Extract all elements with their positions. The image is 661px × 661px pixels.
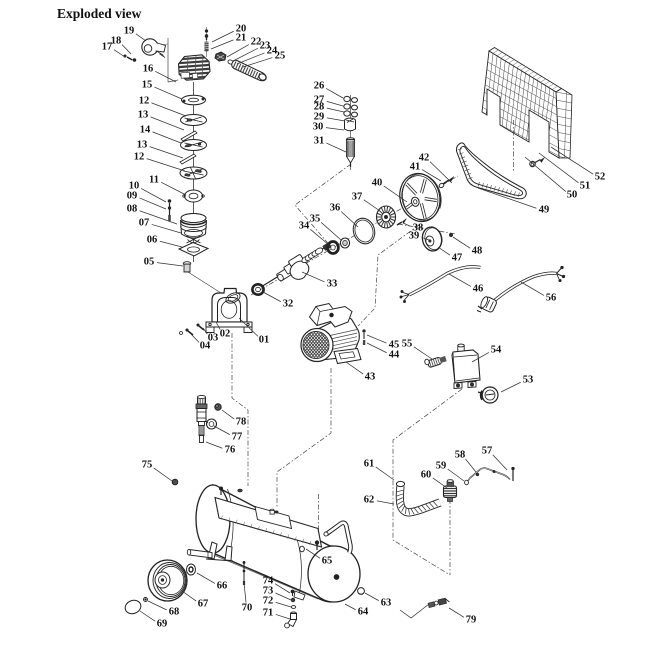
svg-text:73: 73 [263, 586, 274, 597]
svg-text:69: 69 [157, 619, 168, 630]
svg-text:26: 26 [314, 81, 325, 92]
svg-text:13: 13 [137, 140, 148, 151]
svg-text:61: 61 [364, 459, 375, 470]
svg-text:Exploded view: Exploded view [57, 6, 142, 21]
svg-text:57: 57 [482, 446, 493, 457]
svg-text:04: 04 [200, 341, 211, 352]
svg-text:25: 25 [275, 51, 286, 62]
svg-text:49: 49 [539, 205, 550, 216]
svg-text:43: 43 [365, 372, 376, 383]
svg-text:01: 01 [259, 335, 270, 346]
svg-text:40: 40 [372, 178, 383, 189]
svg-text:34: 34 [299, 221, 310, 232]
svg-text:36: 36 [330, 203, 341, 214]
svg-text:78: 78 [236, 417, 247, 428]
svg-text:30: 30 [313, 122, 324, 133]
svg-text:75: 75 [142, 460, 153, 471]
svg-text:21: 21 [236, 33, 247, 44]
svg-text:42: 42 [419, 153, 430, 164]
svg-text:33: 33 [327, 279, 338, 290]
svg-text:31: 31 [314, 136, 325, 147]
svg-text:55: 55 [402, 339, 413, 350]
svg-text:63: 63 [381, 598, 392, 609]
svg-text:46: 46 [473, 284, 484, 295]
svg-text:15: 15 [142, 80, 153, 91]
svg-text:19: 19 [124, 26, 135, 37]
svg-text:06: 06 [147, 235, 158, 246]
svg-text:64: 64 [358, 607, 369, 618]
svg-text:37: 37 [352, 192, 363, 203]
svg-text:76: 76 [225, 445, 236, 456]
svg-text:18: 18 [111, 36, 122, 47]
svg-text:35: 35 [310, 214, 321, 225]
svg-text:53: 53 [523, 375, 534, 386]
svg-text:05: 05 [144, 257, 155, 268]
svg-text:12: 12 [134, 152, 145, 163]
svg-text:17: 17 [102, 42, 113, 53]
svg-text:70: 70 [242, 603, 253, 614]
svg-text:52: 52 [595, 172, 606, 183]
svg-text:71: 71 [263, 608, 274, 619]
svg-text:79: 79 [466, 615, 477, 626]
svg-text:39: 39 [409, 231, 420, 242]
svg-text:72: 72 [263, 596, 274, 607]
svg-text:07: 07 [139, 218, 150, 229]
svg-text:62: 62 [364, 495, 375, 506]
svg-text:74: 74 [263, 576, 274, 587]
svg-text:56: 56 [546, 293, 557, 304]
svg-text:08: 08 [127, 204, 138, 215]
svg-text:66: 66 [217, 581, 228, 592]
svg-text:32: 32 [283, 299, 294, 310]
svg-text:51: 51 [580, 181, 591, 192]
svg-text:14: 14 [140, 125, 151, 136]
svg-text:45: 45 [389, 340, 400, 351]
svg-text:02: 02 [220, 329, 231, 340]
svg-text:60: 60 [421, 470, 432, 481]
svg-text:68: 68 [169, 607, 180, 618]
svg-text:65: 65 [322, 556, 333, 567]
svg-text:59: 59 [436, 461, 447, 472]
svg-text:16: 16 [143, 64, 154, 75]
svg-text:67: 67 [198, 599, 209, 610]
svg-text:44: 44 [389, 350, 400, 361]
svg-text:48: 48 [472, 246, 483, 257]
svg-text:12: 12 [139, 96, 150, 107]
svg-text:50: 50 [567, 190, 578, 201]
svg-text:13: 13 [138, 110, 149, 121]
svg-text:47: 47 [452, 253, 463, 264]
svg-text:77: 77 [232, 432, 243, 443]
svg-text:09: 09 [127, 191, 138, 202]
svg-text:54: 54 [491, 345, 502, 356]
svg-text:58: 58 [455, 450, 466, 461]
svg-text:11: 11 [149, 175, 159, 186]
